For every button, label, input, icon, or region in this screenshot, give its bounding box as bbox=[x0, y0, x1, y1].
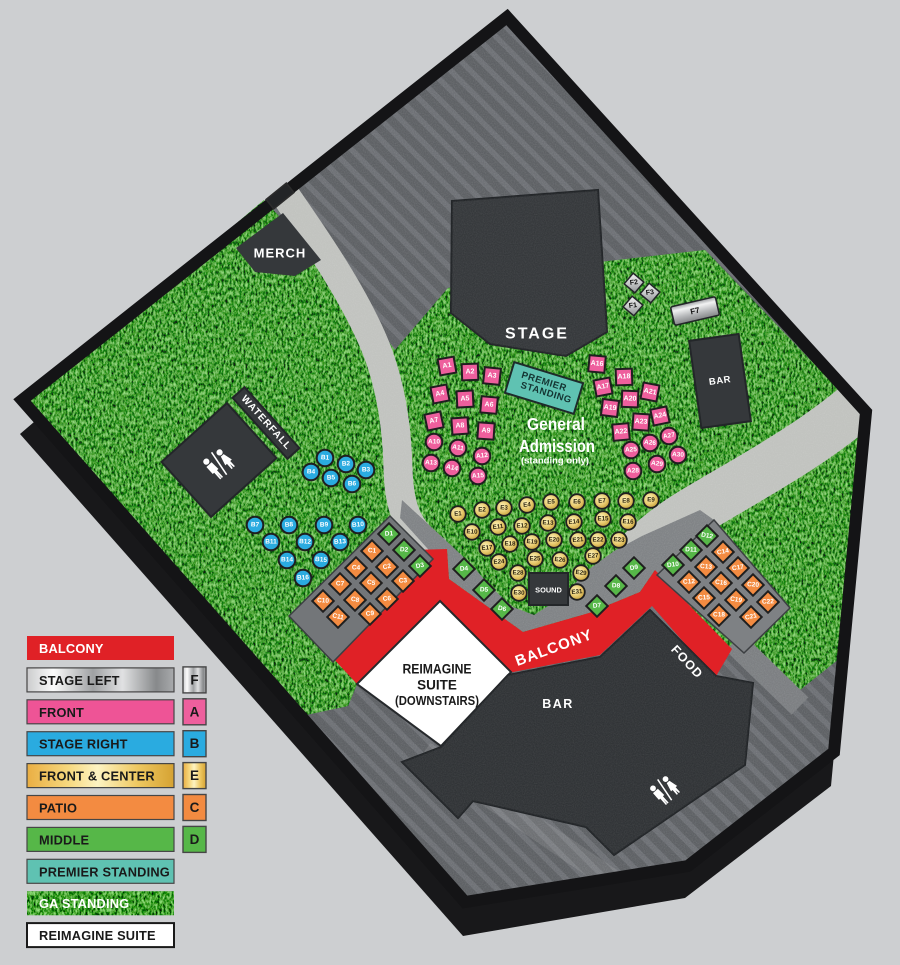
svg-text:D10: D10 bbox=[667, 561, 680, 569]
svg-text:A3: A3 bbox=[487, 372, 497, 380]
svg-text:B7: B7 bbox=[251, 521, 260, 529]
svg-text:E17: E17 bbox=[481, 544, 493, 552]
svg-text:E18: E18 bbox=[504, 540, 516, 547]
svg-text:FRONT & CENTER: FRONT & CENTER bbox=[39, 769, 155, 784]
svg-text:B9: B9 bbox=[320, 521, 329, 528]
svg-text:C1: C1 bbox=[368, 547, 377, 555]
svg-text:E10: E10 bbox=[466, 528, 478, 535]
svg-text:F2: F2 bbox=[629, 279, 638, 287]
svg-text:F: F bbox=[190, 672, 198, 687]
svg-text:C13: C13 bbox=[700, 563, 713, 571]
svg-text:D11: D11 bbox=[685, 546, 697, 553]
svg-text:STAGE LEFT: STAGE LEFT bbox=[39, 673, 120, 688]
svg-text:D2: D2 bbox=[400, 546, 409, 554]
svg-text:E28: E28 bbox=[512, 569, 524, 576]
svg-text:F1: F1 bbox=[628, 302, 637, 310]
svg-text:E29: E29 bbox=[575, 569, 587, 577]
svg-text:A13: A13 bbox=[425, 459, 438, 467]
svg-text:C3: C3 bbox=[399, 577, 408, 585]
svg-text:E8: E8 bbox=[622, 497, 630, 504]
svg-text:Admission: Admission bbox=[519, 436, 595, 456]
svg-text:D1: D1 bbox=[385, 530, 394, 537]
svg-text:B: B bbox=[190, 736, 200, 751]
svg-text:A25: A25 bbox=[625, 446, 638, 454]
svg-text:A26: A26 bbox=[644, 439, 657, 447]
svg-text:E31: E31 bbox=[571, 588, 583, 596]
svg-text:FRONT: FRONT bbox=[39, 705, 84, 720]
svg-text:B1: B1 bbox=[321, 454, 330, 462]
svg-text:E1: E1 bbox=[454, 510, 463, 518]
svg-text:REIMAGINE: REIMAGINE bbox=[403, 662, 472, 677]
svg-text:A23: A23 bbox=[634, 418, 647, 426]
svg-text:E16: E16 bbox=[622, 518, 634, 526]
svg-text:E11: E11 bbox=[492, 523, 504, 531]
svg-text:A2: A2 bbox=[465, 368, 474, 375]
svg-text:PATIO: PATIO bbox=[39, 801, 77, 816]
svg-text:C9: C9 bbox=[366, 610, 375, 618]
svg-text:PREMIER STANDING: PREMIER STANDING bbox=[39, 864, 170, 879]
svg-text:E27: E27 bbox=[587, 552, 599, 560]
svg-text:A18: A18 bbox=[617, 373, 630, 380]
svg-text:E23: E23 bbox=[613, 536, 625, 544]
svg-text:E24: E24 bbox=[493, 558, 505, 566]
svg-text:B14: B14 bbox=[281, 556, 293, 563]
svg-text:E7: E7 bbox=[598, 497, 607, 505]
svg-text:BAR: BAR bbox=[542, 697, 574, 711]
svg-text:E30: E30 bbox=[513, 589, 525, 597]
svg-text:B11: B11 bbox=[265, 539, 277, 546]
svg-text:D4: D4 bbox=[460, 565, 469, 573]
svg-text:E20: E20 bbox=[548, 536, 560, 544]
svg-text:E5: E5 bbox=[547, 498, 555, 505]
svg-text:MIDDLE: MIDDLE bbox=[39, 832, 90, 847]
svg-text:E6: E6 bbox=[573, 498, 581, 505]
svg-text:E2: E2 bbox=[478, 507, 486, 514]
svg-text:E25: E25 bbox=[529, 556, 541, 563]
svg-text:A20: A20 bbox=[623, 395, 636, 402]
svg-text:SUITE: SUITE bbox=[417, 678, 457, 693]
svg-text:C10: C10 bbox=[317, 597, 330, 605]
svg-text:MERCH: MERCH bbox=[254, 246, 307, 261]
svg-text:C16: C16 bbox=[715, 579, 728, 587]
svg-text:A10: A10 bbox=[428, 438, 440, 445]
svg-text:B16: B16 bbox=[297, 574, 310, 582]
svg-text:E13: E13 bbox=[542, 519, 554, 527]
svg-text:E9: E9 bbox=[647, 496, 655, 503]
svg-text:C22: C22 bbox=[762, 598, 775, 606]
svg-text:B2: B2 bbox=[342, 460, 351, 468]
svg-text:C7: C7 bbox=[336, 580, 345, 587]
svg-text:E14: E14 bbox=[568, 518, 580, 526]
svg-text:A: A bbox=[190, 704, 200, 719]
svg-text:E: E bbox=[190, 768, 199, 783]
svg-text:A16: A16 bbox=[590, 360, 604, 368]
svg-text:C15: C15 bbox=[698, 594, 711, 601]
svg-text:B12: B12 bbox=[299, 538, 312, 546]
svg-text:GA STANDING: GA STANDING bbox=[39, 896, 129, 911]
svg-text:D: D bbox=[190, 832, 200, 847]
svg-text:E19: E19 bbox=[526, 538, 538, 546]
svg-text:SOUND: SOUND bbox=[535, 586, 562, 595]
svg-text:STAGE: STAGE bbox=[505, 326, 569, 343]
svg-text:E12: E12 bbox=[516, 522, 528, 529]
svg-text:D8: D8 bbox=[612, 582, 621, 589]
svg-text:STAGE RIGHT: STAGE RIGHT bbox=[39, 737, 128, 752]
svg-text:General: General bbox=[527, 414, 585, 434]
svg-text:C4: C4 bbox=[352, 564, 361, 572]
svg-text:E15: E15 bbox=[597, 516, 609, 523]
svg-text:A30: A30 bbox=[672, 451, 685, 459]
svg-text:C18: C18 bbox=[713, 612, 725, 619]
svg-text:E4: E4 bbox=[523, 501, 532, 509]
svg-text:A6: A6 bbox=[484, 401, 494, 409]
svg-text:B10: B10 bbox=[352, 521, 365, 529]
svg-text:A15: A15 bbox=[472, 472, 485, 480]
svg-text:A22: A22 bbox=[614, 428, 628, 436]
svg-text:C6: C6 bbox=[383, 595, 392, 603]
svg-text:B5: B5 bbox=[327, 474, 336, 482]
svg-text:A28: A28 bbox=[627, 467, 639, 474]
svg-text:E26: E26 bbox=[554, 556, 566, 564]
svg-text:B15: B15 bbox=[315, 556, 328, 564]
svg-text:A9: A9 bbox=[481, 427, 491, 435]
svg-text:REIMAGINE SUITE: REIMAGINE SUITE bbox=[39, 928, 156, 943]
svg-text:A12: A12 bbox=[476, 452, 489, 460]
svg-text:BALCONY: BALCONY bbox=[39, 641, 104, 656]
svg-text:E3: E3 bbox=[500, 504, 509, 512]
svg-text:B13: B13 bbox=[334, 538, 347, 546]
svg-text:B4: B4 bbox=[307, 468, 316, 476]
svg-text:D7: D7 bbox=[593, 602, 602, 610]
svg-text:B8: B8 bbox=[285, 521, 294, 529]
svg-text:E22: E22 bbox=[592, 536, 604, 543]
svg-text:B3: B3 bbox=[362, 467, 371, 474]
svg-text:D5: D5 bbox=[480, 586, 489, 594]
svg-text:C: C bbox=[190, 800, 200, 815]
svg-text:F3: F3 bbox=[645, 289, 654, 297]
svg-text:B6: B6 bbox=[348, 481, 357, 488]
svg-text:C12: C12 bbox=[683, 578, 696, 586]
svg-text:(standing only): (standing only) bbox=[521, 456, 589, 467]
svg-text:C20: C20 bbox=[747, 581, 760, 589]
svg-text:A8: A8 bbox=[455, 422, 465, 430]
svg-text:E21: E21 bbox=[572, 536, 584, 544]
svg-text:(DOWNSTAIRS): (DOWNSTAIRS) bbox=[395, 694, 479, 708]
svg-text:A5: A5 bbox=[460, 395, 469, 402]
